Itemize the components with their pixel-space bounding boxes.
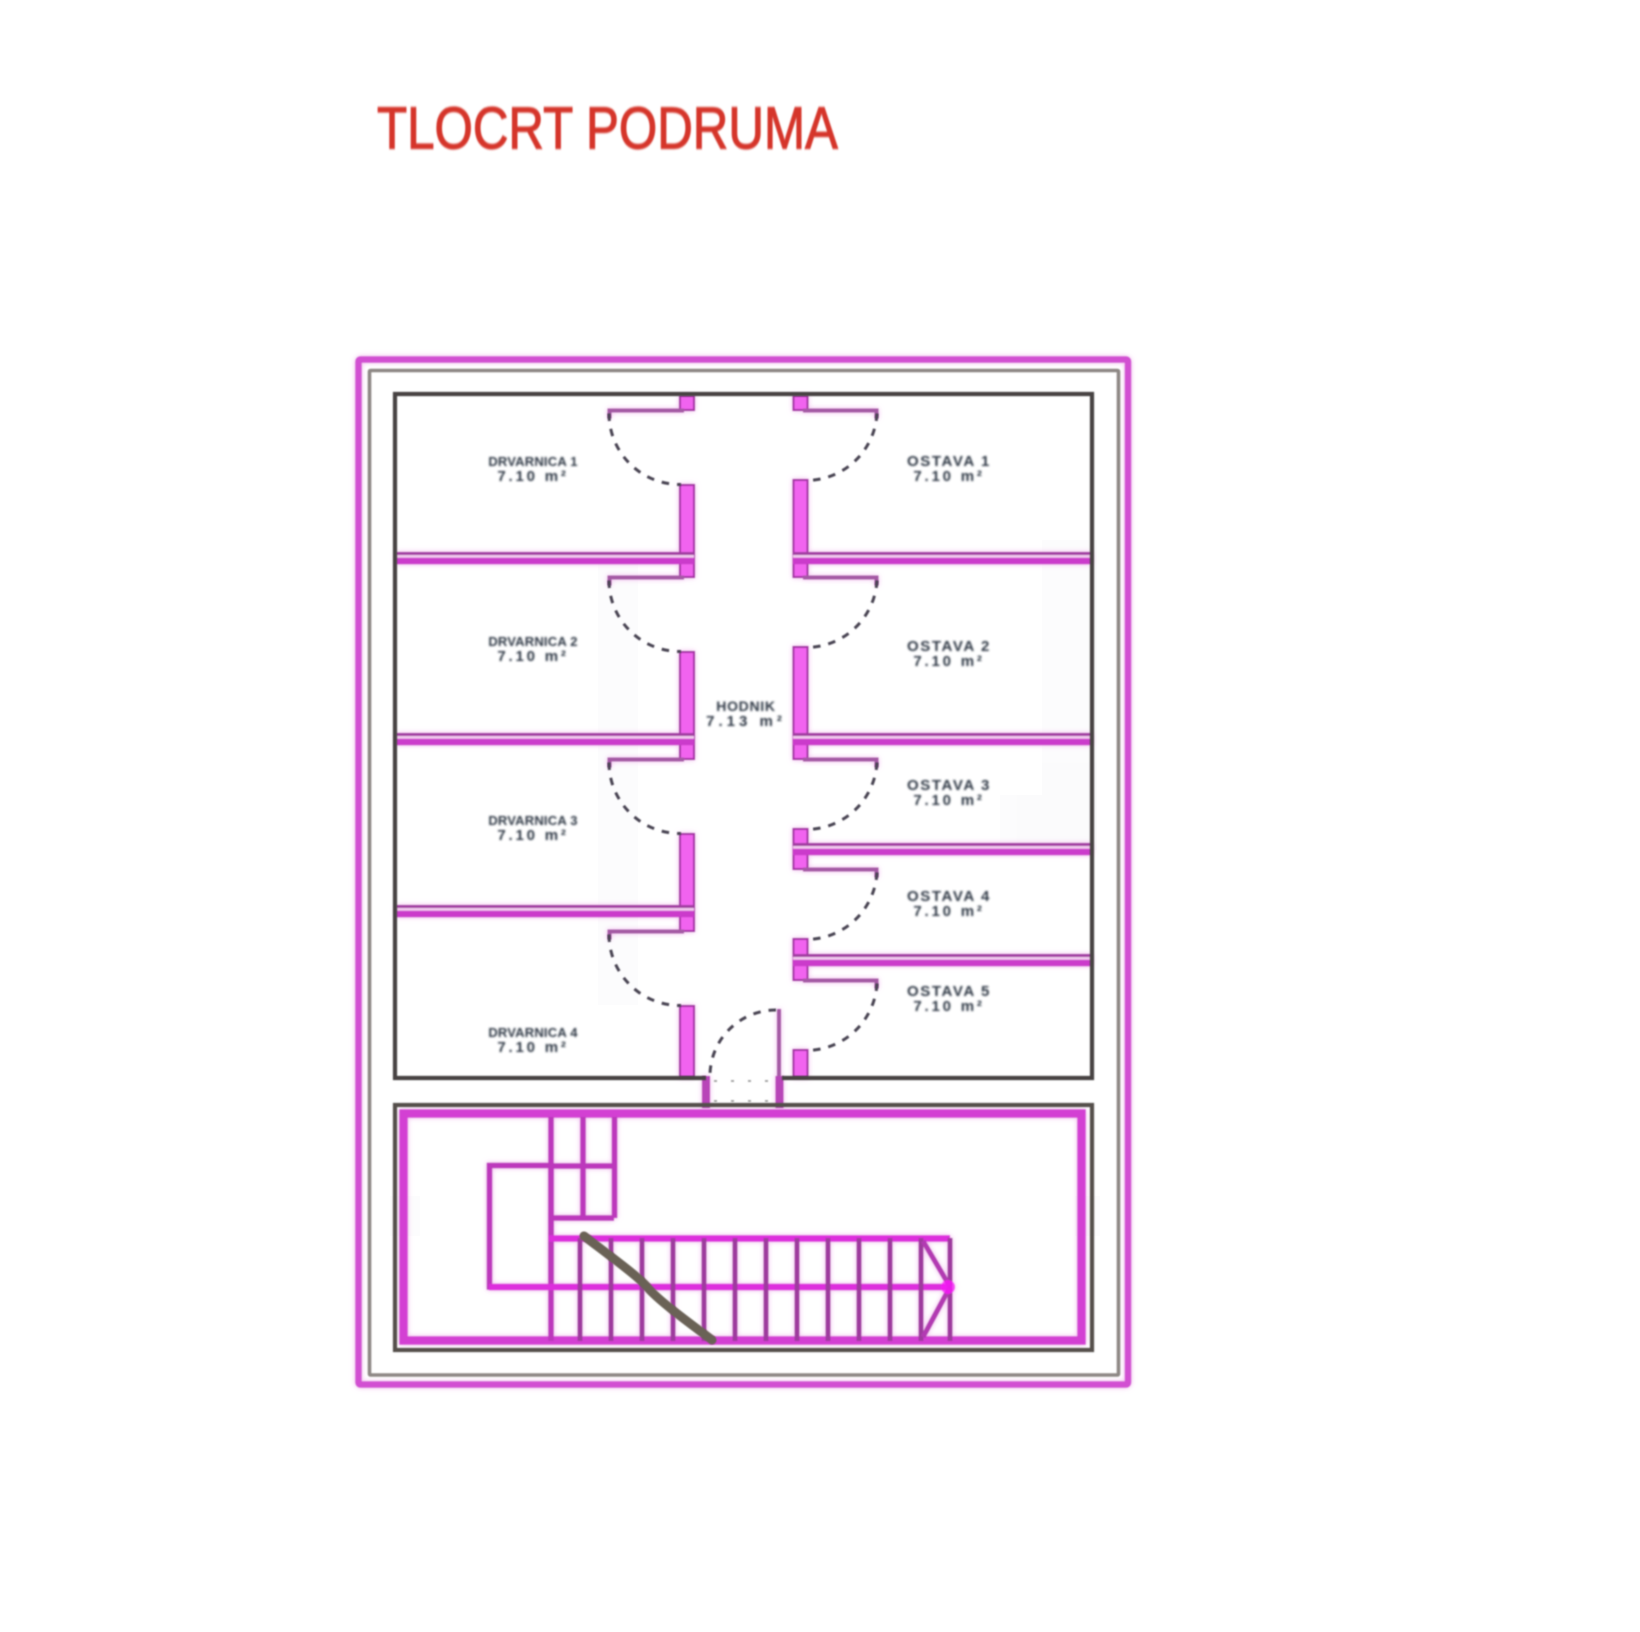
svg-text:TLOCRT PODRUMA: TLOCRT PODRUMA: [377, 95, 838, 161]
svg-text:DRVARNICA 2: DRVARNICA 2: [488, 634, 577, 649]
svg-text:DRVARNICA 1: DRVARNICA 1: [488, 454, 577, 469]
svg-text:7.10 m²: 7.10 m²: [913, 468, 984, 485]
svg-text:7.10 m²: 7.10 m²: [913, 792, 984, 809]
svg-text:7.13 m²: 7.13 m²: [706, 713, 786, 730]
svg-text:7.10 m²: 7.10 m²: [497, 468, 568, 485]
svg-text:7.10 m²: 7.10 m²: [913, 653, 984, 670]
svg-text:DRVARNICA 4: DRVARNICA 4: [488, 1025, 578, 1040]
svg-text:DRVARNICA 3: DRVARNICA 3: [488, 813, 577, 828]
svg-text:7.10 m²: 7.10 m²: [913, 998, 984, 1015]
svg-text:7.10 m²: 7.10 m²: [497, 827, 568, 844]
svg-text:7.10 m²: 7.10 m²: [497, 648, 568, 665]
svg-text:HODNIK: HODNIK: [716, 698, 775, 714]
svg-text:7.10 m²: 7.10 m²: [497, 1039, 568, 1056]
svg-text:7.10 m²: 7.10 m²: [913, 903, 984, 920]
